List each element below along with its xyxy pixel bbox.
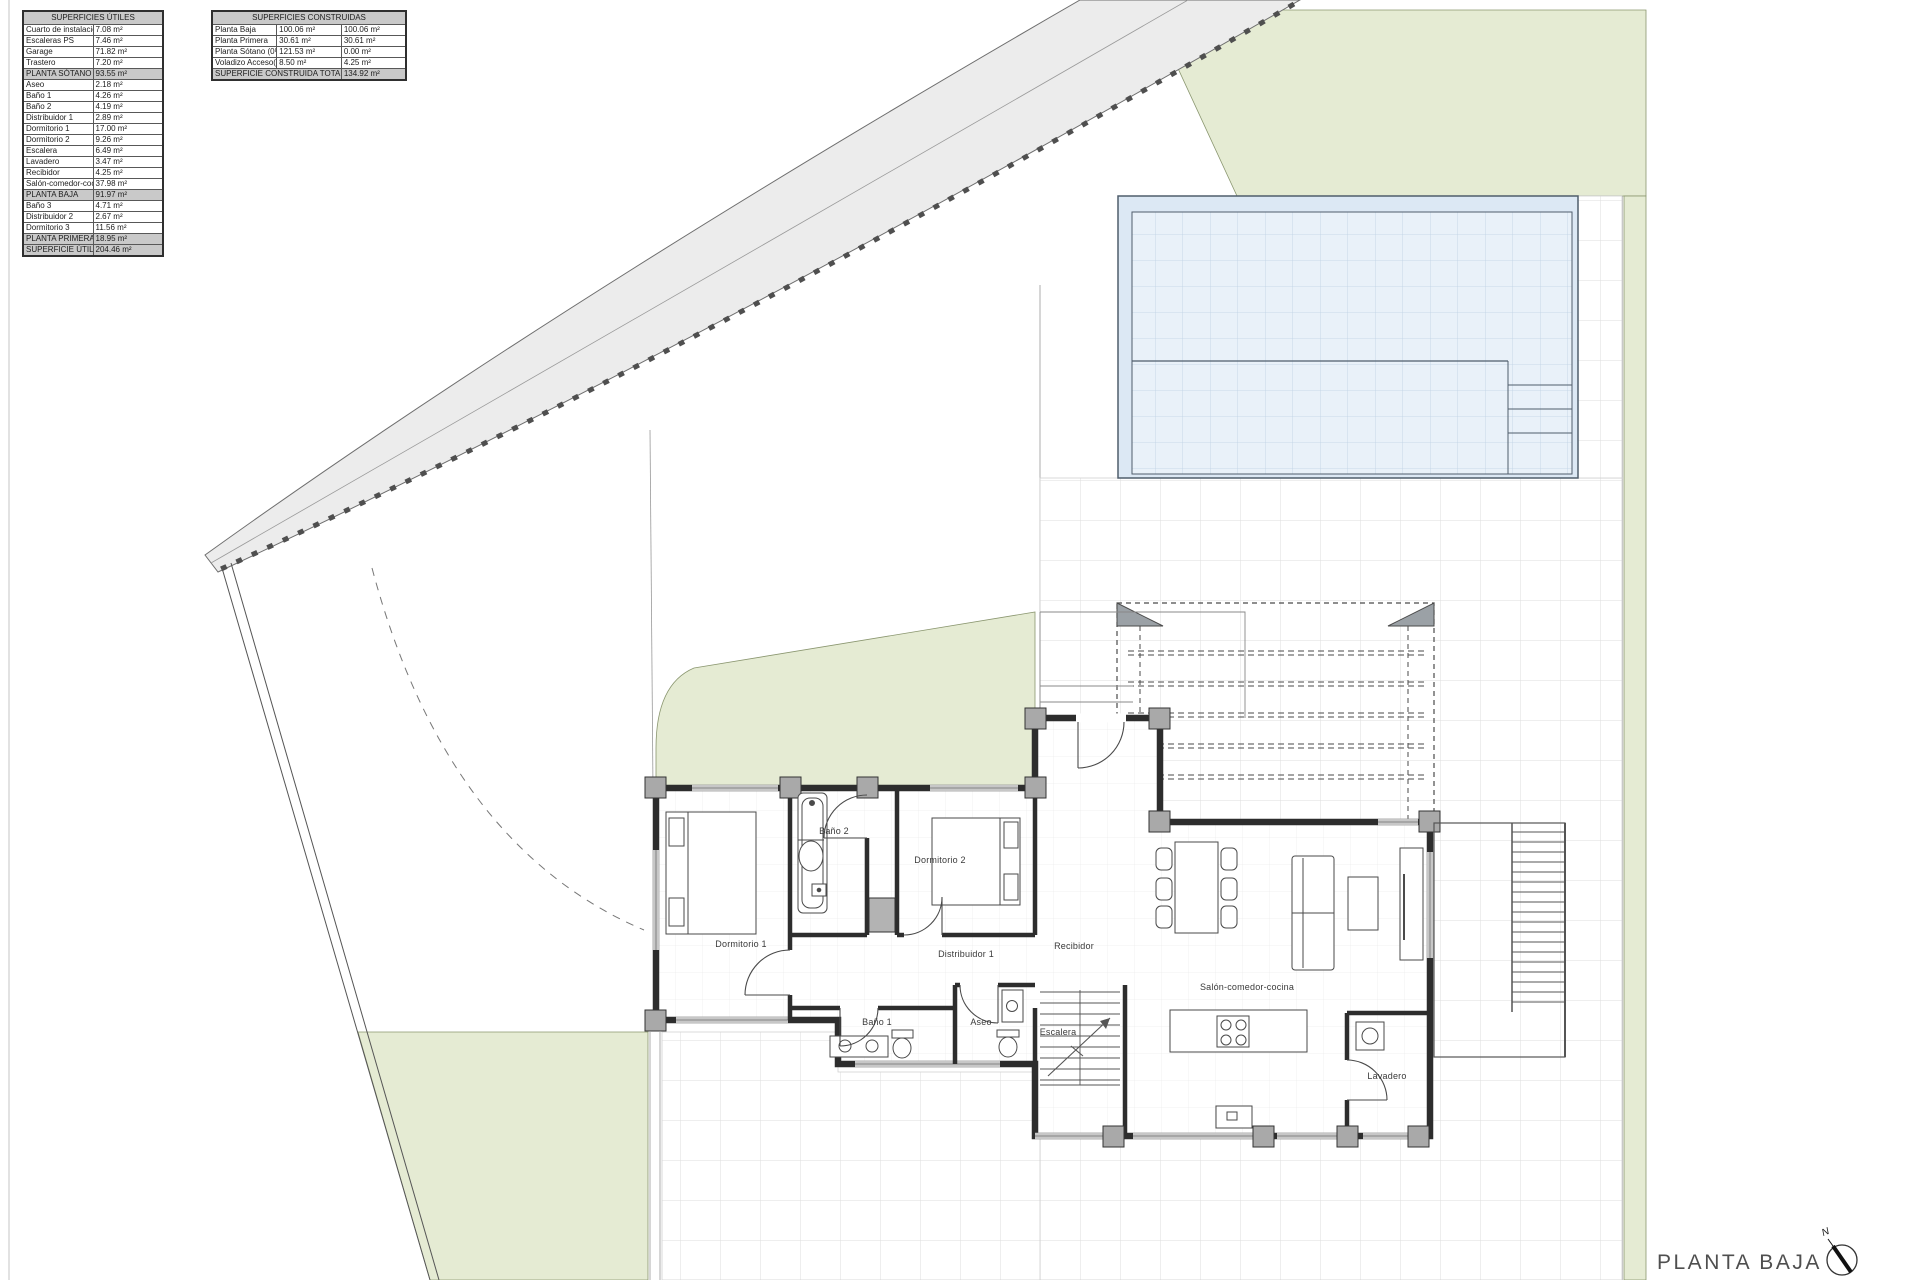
row-label: PLANTA BAJA [23, 190, 93, 201]
row-label: Escalera [23, 146, 93, 157]
row-label: SUPERFICIE ÚTIL TOTAL [23, 245, 93, 257]
room-label-bano-1: Baño 1 [862, 1017, 892, 1027]
row-value: 93.55 m² [93, 69, 163, 80]
row-value: 71.82 m² [93, 47, 163, 58]
room-label-dormitorio-2: Dormitorio 2 [914, 855, 965, 865]
row-value: 7.20 m² [93, 58, 163, 69]
row-label: PLANTA SÓTANO [23, 69, 93, 80]
table-row: Distribuidor 1 2.89 m² [23, 113, 163, 124]
sink [799, 841, 823, 871]
table-row: Baño 3 4.71 m² [23, 201, 163, 212]
row-label: Recibidor [23, 168, 93, 179]
coffee-table [1348, 877, 1378, 930]
room-label-recibidor: Recibidor [1054, 941, 1094, 951]
table-row: Dormitorio 1 17.00 m² [23, 124, 163, 135]
row-value-computed: 4.25 m² [341, 58, 406, 69]
row-value: 6.49 m² [93, 146, 163, 157]
row-label: Planta Baja [212, 25, 277, 36]
room-label-aseo: Aseo [970, 1017, 991, 1027]
row-value-built: 8.50 m² [277, 58, 342, 69]
row-value: 204.46 m² [93, 245, 163, 257]
row-value: 4.25 m² [93, 168, 163, 179]
room-label-escalera: Escalera [1040, 1027, 1077, 1037]
table-row: Escaleras PS 7.46 m² [23, 36, 163, 47]
total-value: 134.92 m² [341, 69, 406, 81]
table-row: Trastero 7.20 m² [23, 58, 163, 69]
row-value-computed: 0.00 m² [341, 47, 406, 58]
table-row: PLANTA PRIMERA 18.95 m² [23, 234, 163, 245]
row-label: Aseo [23, 80, 93, 91]
superficies-utiles-table: SUPERFICIES ÚTILES Cuarto de instalacion… [22, 10, 164, 257]
row-label: Dormitorio 2 [23, 135, 93, 146]
table-row: SUPERFICIE ÚTIL TOTAL 204.46 m² [23, 245, 163, 257]
table-row: Dormitorio 3 11.56 m² [23, 223, 163, 234]
dining-table [1175, 842, 1218, 933]
floor-plan-page: { "tables": { "utiles": { "title": "SUPE… [0, 0, 1920, 1280]
table-row: Recibidor 4.25 m² [23, 168, 163, 179]
row-value-built: 30.61 m² [277, 36, 342, 47]
row-value-computed: 30.61 m² [341, 36, 406, 47]
row-value: 3.47 m² [93, 157, 163, 168]
superficies-utiles-title: SUPERFICIES ÚTILES [23, 11, 163, 25]
row-label: Lavadero [23, 157, 93, 168]
table-row: PLANTA BAJA 91.97 m² [23, 190, 163, 201]
row-label: PLANTA PRIMERA [23, 234, 93, 245]
site-plan-drawing [0, 0, 1920, 1280]
swimming-pool [1118, 196, 1578, 478]
table-row: Lavadero 3.47 m² [23, 157, 163, 168]
room-label-salon: Salón-comedor-cocina [1200, 982, 1294, 992]
shaft [869, 898, 895, 932]
row-value: 7.08 m² [93, 25, 163, 36]
row-value: 17.00 m² [93, 124, 163, 135]
row-label: Planta Primera [212, 36, 277, 47]
room-label-lavadero: Lavadero [1367, 1071, 1406, 1081]
room-label-distribuidor-1: Distribuidor 1 [938, 949, 994, 959]
row-label: Trastero [23, 58, 93, 69]
row-value-built: 100.06 m² [277, 25, 342, 36]
row-value: 7.46 m² [93, 36, 163, 47]
table-row: Salón-comedor-cocina 37.98 m² [23, 179, 163, 190]
table-row: Escalera 6.49 m² [23, 146, 163, 157]
table-row: Baño 1 4.26 m² [23, 91, 163, 102]
row-value: 2.18 m² [93, 80, 163, 91]
row-value: 4.19 m² [93, 102, 163, 113]
row-value: 91.97 m² [93, 190, 163, 201]
row-value: 9.26 m² [93, 135, 163, 146]
row-value: 4.26 m² [93, 91, 163, 102]
table-row: Planta Primera 30.61 m² 30.61 m² [212, 36, 406, 47]
row-value-built: 121.53 m² [277, 47, 342, 58]
table-row: Baño 2 4.19 m² [23, 102, 163, 113]
row-label: Baño 2 [23, 102, 93, 113]
row-value-computed: 100.06 m² [341, 25, 406, 36]
toilet [893, 1038, 911, 1058]
room-label-bano-2: Baño 2 [819, 826, 849, 836]
total-label: SUPERFICIE CONSTRUIDA TOTAL [212, 69, 341, 81]
superficies-construidas-table: SUPERFICIES CONSTRUIDAS Planta Baja 100.… [211, 10, 407, 81]
row-value: 11.56 m² [93, 223, 163, 234]
row-label: Planta Sótano (0%) [212, 47, 277, 58]
row-value: 4.71 m² [93, 201, 163, 212]
row-label: Cuarto de instalaciones [23, 25, 93, 36]
row-value: 2.89 m² [93, 113, 163, 124]
table-row: PLANTA SÓTANO 93.55 m² [23, 69, 163, 80]
row-label: Baño 3 [23, 201, 93, 212]
table-row: Cuarto de instalaciones 7.08 m² [23, 25, 163, 36]
row-value: 18.95 m² [93, 234, 163, 245]
table-row: Voladizo Acceso(50%) 8.50 m² 4.25 m² [212, 58, 406, 69]
table-row: Dormitorio 2 9.26 m² [23, 135, 163, 146]
table-row: Aseo 2.18 m² [23, 80, 163, 91]
table-row: Distribuidor 2 2.67 m² [23, 212, 163, 223]
total-row: SUPERFICIE CONSTRUIDA TOTAL 134.92 m² [212, 69, 406, 81]
row-label: Voladizo Acceso(50%) [212, 58, 277, 69]
row-label: Dormitorio 3 [23, 223, 93, 234]
superficies-construidas-title: SUPERFICIES CONSTRUIDAS [212, 11, 406, 25]
row-label: Escaleras PS [23, 36, 93, 47]
row-label: Distribuidor 2 [23, 212, 93, 223]
row-value: 37.98 m² [93, 179, 163, 190]
table-row: Planta Baja 100.06 m² 100.06 m² [212, 25, 406, 36]
row-label: Salón-comedor-cocina [23, 179, 93, 190]
table-row: Planta Sótano (0%) 121.53 m² 0.00 m² [212, 47, 406, 58]
room-label-dormitorio-1: Dormitorio 1 [715, 939, 766, 949]
table-row: Garage 71.82 m² [23, 47, 163, 58]
row-label: Distribuidor 1 [23, 113, 93, 124]
row-label: Baño 1 [23, 91, 93, 102]
row-value: 2.67 m² [93, 212, 163, 223]
row-label: Dormitorio 1 [23, 124, 93, 135]
plan-title: PLANTA BAJA [1657, 1251, 1822, 1275]
row-label: Garage [23, 47, 93, 58]
